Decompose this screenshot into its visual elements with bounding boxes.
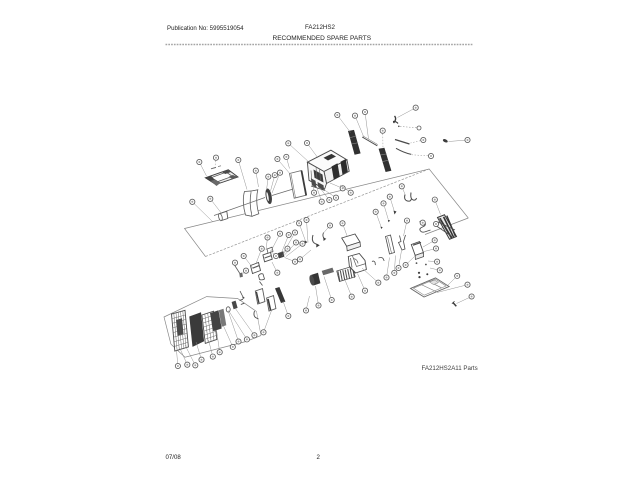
svg-text:FA212HS2A11 Parts: FA212HS2A11 Parts — [422, 365, 478, 372]
